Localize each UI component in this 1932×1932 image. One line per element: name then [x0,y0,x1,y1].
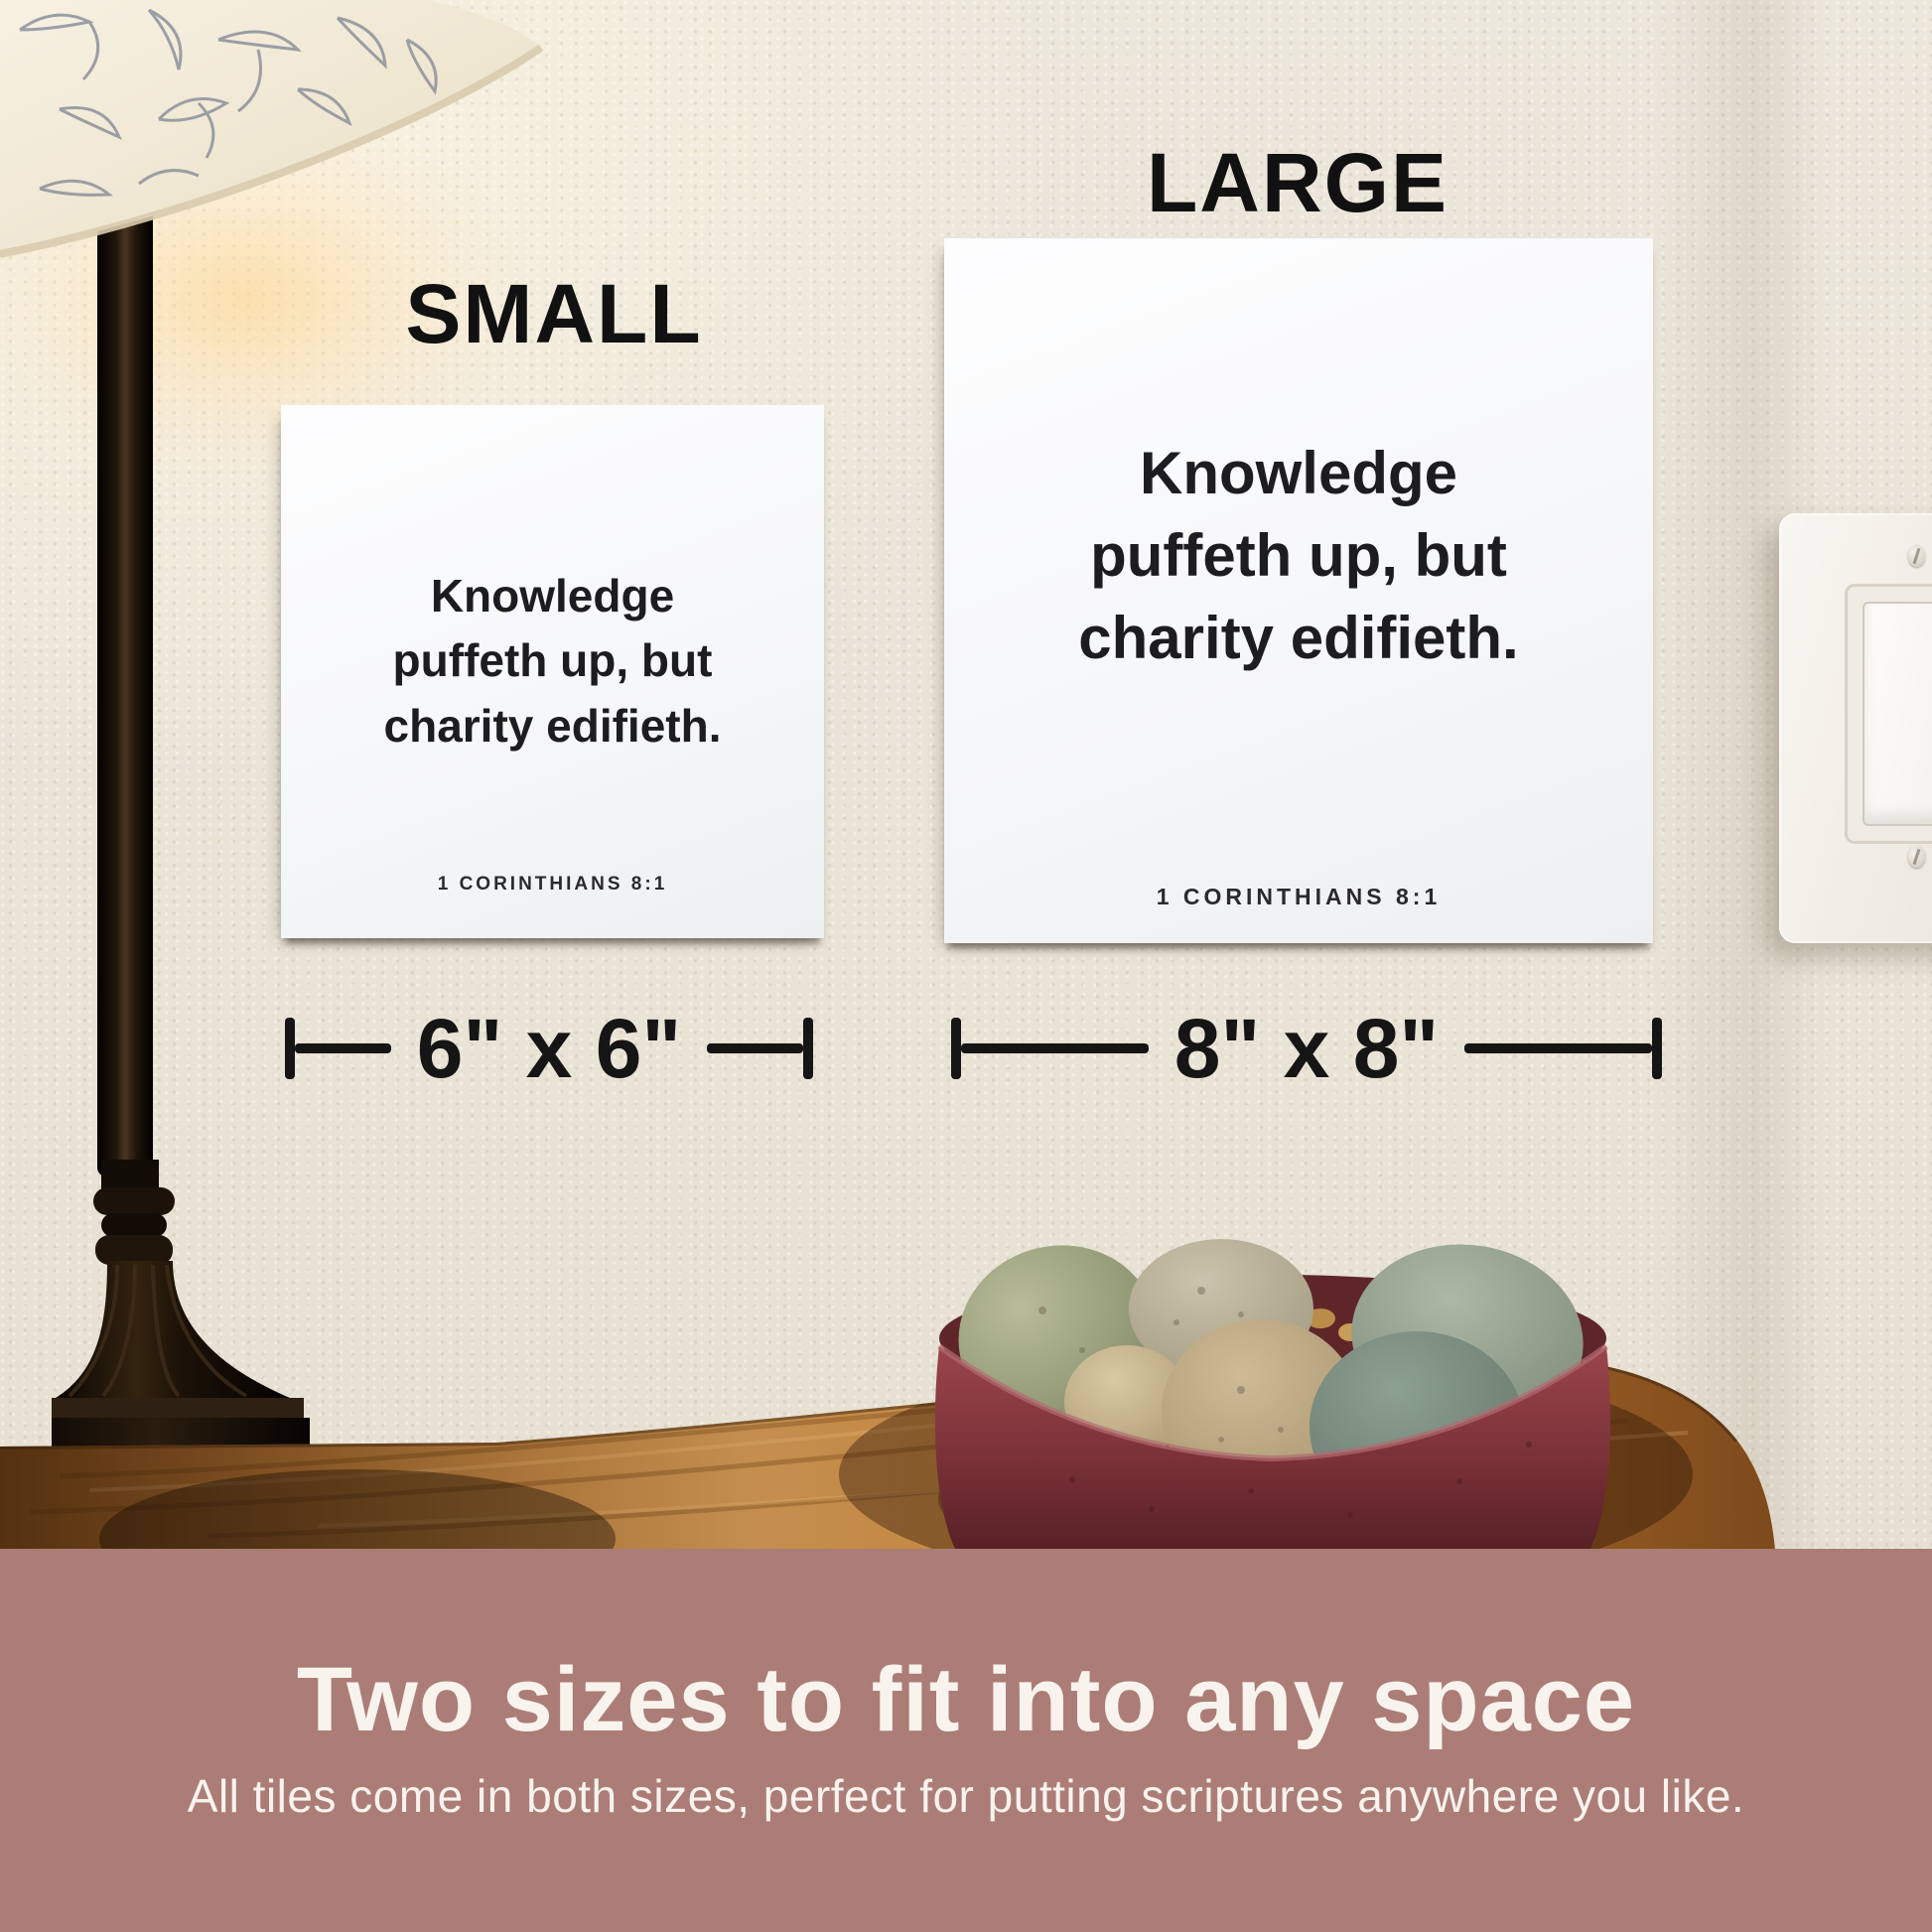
light-switch-rocker [1863,602,1932,826]
size-label-large: LARGE [1147,141,1449,224]
dimension-annotation-small: 6" x 6" [285,1007,813,1090]
lampshade [0,0,556,260]
quote-line: charity edifieth. [281,694,824,759]
size-label-small: SMALL [405,272,702,355]
caption-heading: Two sizes to fit into any space [0,1549,1932,1753]
dimension-text-small: 6" x 6" [391,1007,707,1090]
dimension-line [1464,1043,1652,1053]
dimension-annotation-large: 8" x 8" [951,1007,1662,1090]
dimension-line [707,1043,803,1053]
quote-line: charity edifieth. [944,598,1653,680]
dimension-line [961,1043,1149,1053]
dimension-line [295,1043,391,1053]
quote-line: puffeth up, but [944,515,1653,598]
dimension-endcap [803,1018,813,1079]
dimension-endcap [951,1018,961,1079]
screw-icon [1908,545,1925,567]
tile-quote: Knowledge puffeth up, but charity edifie… [944,433,1653,679]
caption-band: Two sizes to fit into any space All tile… [0,1549,1932,1932]
bowl-shape [923,1231,1618,1549]
dimension-endcap [1652,1018,1662,1079]
caption-subheading: All tiles come in both sizes, perfect fo… [0,1769,1932,1823]
scripture-tile-large: Knowledge puffeth up, but charity edifie… [944,238,1653,943]
dimension-text-large: 8" x 8" [1149,1007,1464,1090]
quote-line: puffeth up, but [281,628,824,693]
scripture-reference: 1 CORINTHIANS 8:1 [944,884,1653,910]
tile-quote: Knowledge puffeth up, but charity edifie… [281,564,824,759]
scripture-reference: 1 CORINTHIANS 8:1 [281,874,824,896]
bowl-of-stones [923,1231,1618,1549]
quote-line: Knowledge [281,564,824,628]
screw-icon [1908,846,1925,868]
scripture-tile-small: Knowledge puffeth up, but charity edifie… [281,405,824,938]
lamp-pole [97,149,153,1176]
lampshade-shape [0,0,556,260]
product-size-photo: Knowledge puffeth up, but charity edifie… [0,0,1932,1932]
quote-line: Knowledge [944,433,1653,515]
dimension-endcap [285,1018,295,1079]
